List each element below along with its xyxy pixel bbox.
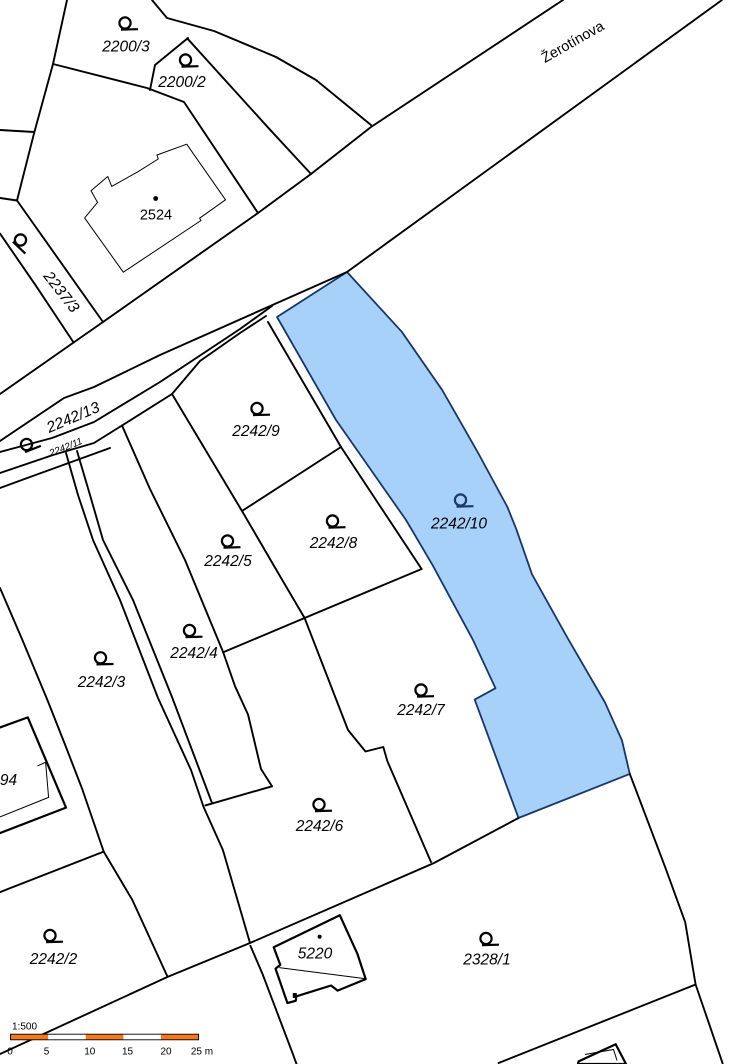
svg-text:20: 20 — [160, 1047, 172, 1058]
svg-text:2242/2: 2242/2 — [29, 951, 78, 968]
svg-text:2242/10: 2242/10 — [430, 516, 487, 533]
svg-text:5220: 5220 — [298, 946, 333, 963]
svg-text:0: 0 — [7, 1047, 13, 1058]
svg-text:10: 10 — [84, 1047, 96, 1058]
svg-text:2242/7: 2242/7 — [396, 702, 446, 719]
svg-text:2242/5: 2242/5 — [203, 553, 252, 570]
svg-text:2200/3: 2200/3 — [101, 39, 150, 56]
svg-text:5: 5 — [44, 1047, 50, 1058]
svg-text:2242/6: 2242/6 — [295, 818, 344, 835]
svg-text:2242/3: 2242/3 — [77, 674, 126, 691]
svg-text:1:500: 1:500 — [12, 1022, 37, 1033]
svg-text:2200/2: 2200/2 — [157, 74, 206, 91]
svg-text:2242/8: 2242/8 — [309, 535, 358, 552]
svg-text:2524: 2524 — [140, 208, 172, 224]
svg-text:25 m: 25 m — [191, 1047, 213, 1058]
svg-text:94: 94 — [0, 772, 17, 789]
svg-text:2242/9: 2242/9 — [231, 423, 280, 440]
svg-text:2242/4: 2242/4 — [169, 645, 218, 662]
svg-text:15: 15 — [122, 1047, 134, 1058]
svg-text:2328/1: 2328/1 — [462, 952, 510, 969]
